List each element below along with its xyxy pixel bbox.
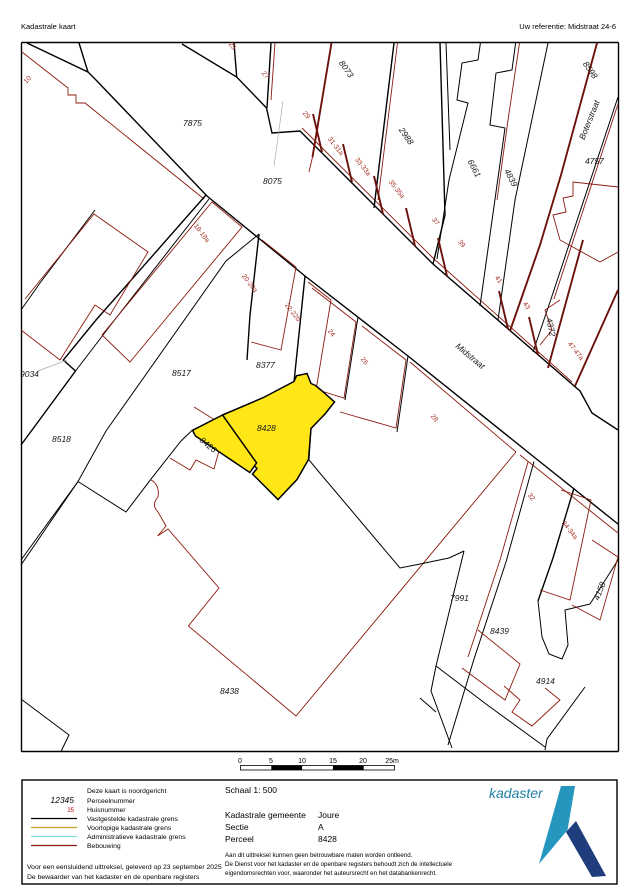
svg-text:Bebouwing: Bebouwing — [87, 843, 121, 850]
svg-text:25m: 25m — [385, 758, 399, 765]
svg-text:Huisnummer: Huisnummer — [87, 807, 126, 814]
svg-text:Voor een eensluidend uittrekse: Voor een eensluidend uittreksel, gelever… — [27, 864, 222, 871]
svg-text:Schaal 1: 500: Schaal 1: 500 — [225, 785, 277, 795]
svg-text:8428: 8428 — [257, 423, 276, 433]
svg-text:4757: 4757 — [585, 156, 604, 166]
svg-text:A: A — [318, 822, 324, 832]
svg-text:Sectie: Sectie — [225, 822, 249, 832]
svg-text:8439: 8439 — [490, 626, 509, 636]
svg-text:4914: 4914 — [536, 676, 555, 686]
svg-text:25: 25 — [67, 808, 74, 814]
svg-text:eigendomsrechten voor, waarond: eigendomsrechten voor, waaronder het aut… — [225, 870, 437, 877]
svg-text:15: 15 — [329, 758, 337, 765]
svg-text:kadaster: kadaster — [489, 785, 544, 801]
svg-text:Vastgestelde kadastrale grens: Vastgestelde kadastrale grens — [87, 816, 179, 823]
svg-text:8438: 8438 — [220, 686, 239, 696]
svg-text:10: 10 — [298, 758, 306, 765]
svg-text:20: 20 — [359, 758, 367, 765]
svg-text:Voorlopige kadastrale grens: Voorlopige kadastrale grens — [87, 825, 172, 832]
svg-text:Perceel: Perceel — [225, 834, 254, 844]
svg-text:8428: 8428 — [318, 834, 337, 844]
svg-text:5: 5 — [269, 758, 273, 765]
svg-text:12345: 12345 — [50, 795, 74, 805]
svg-text:0: 0 — [238, 758, 242, 765]
svg-text:Uw referentie: Midstraat 24-6: Uw referentie: Midstraat 24-6 — [519, 22, 616, 31]
svg-text:8518: 8518 — [52, 434, 71, 444]
svg-text:De bewaarder van het kadaster: De bewaarder van het kadaster en de open… — [27, 874, 200, 881]
svg-text:Kadastrale kaart: Kadastrale kaart — [21, 22, 77, 31]
svg-text:Deze kaart is noordgericht: Deze kaart is noordgericht — [87, 788, 166, 795]
svg-text:Joure: Joure — [318, 810, 340, 820]
svg-text:Aan dit uittreksel kunnen geen: Aan dit uittreksel kunnen geen betrouwba… — [225, 852, 413, 859]
svg-text:8377: 8377 — [256, 360, 275, 370]
svg-text:Kadastrale gemeente: Kadastrale gemeente — [225, 810, 306, 820]
svg-text:Administratieve kadastrale gre: Administratieve kadastrale grens — [87, 834, 186, 841]
svg-text:De Dienst voor het kadaster en: De Dienst voor het kadaster en de openba… — [225, 861, 453, 868]
svg-text:Perceelnummer: Perceelnummer — [87, 798, 136, 805]
svg-text:8517: 8517 — [172, 368, 191, 378]
svg-text:7875: 7875 — [183, 118, 202, 128]
svg-text:9034: 9034 — [20, 369, 39, 379]
svg-text:7991: 7991 — [450, 593, 469, 603]
svg-text:8075: 8075 — [263, 176, 282, 186]
